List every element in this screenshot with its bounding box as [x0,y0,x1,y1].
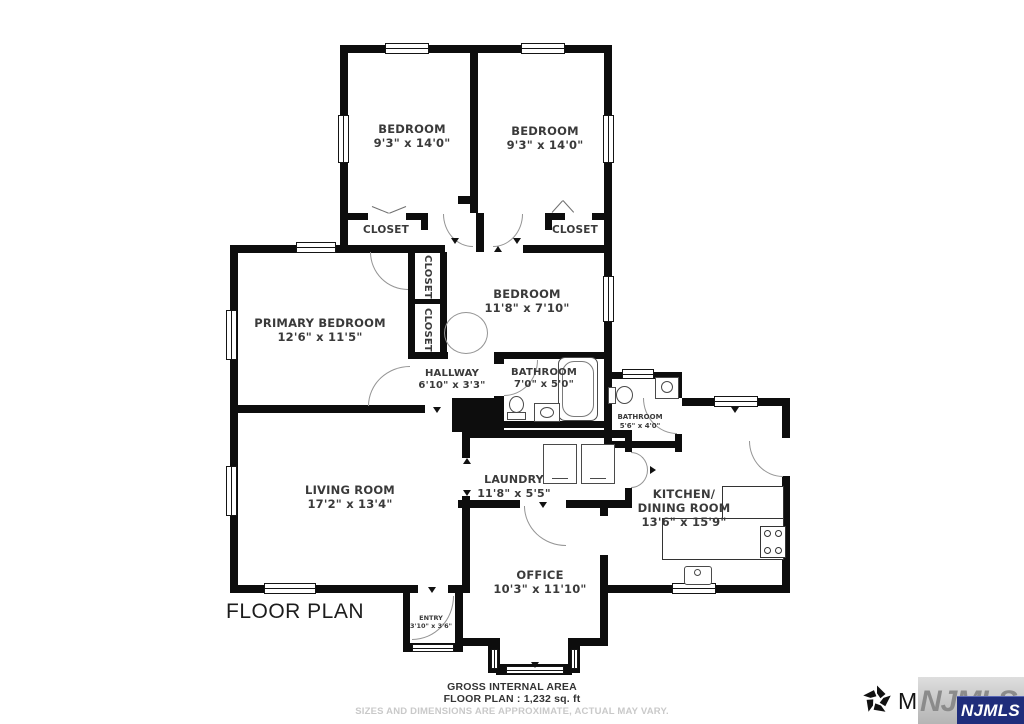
wall-segment [625,430,632,452]
room-dims: 5'6" x 4'0" [617,422,662,431]
wall-segment [455,593,463,645]
direction-arrow [433,407,441,413]
window-symbol [521,43,565,54]
room-label-bathroom-2: BATHROOM 5'6" x 4'0" [617,413,662,431]
wall-segment [604,441,682,448]
kitchen-counter [722,486,784,520]
room-name: BEDROOM [507,124,584,138]
room-name: HALLWAY [418,368,485,380]
window-symbol [603,115,614,163]
wall-segment [458,196,478,204]
closet-door-line [389,206,406,214]
window-symbol [264,583,316,594]
room-dims: 9'3" x 14'0" [507,138,584,152]
room-dims: 7'0" x 5'0" [511,379,577,391]
sink-basin-icon [661,381,673,393]
wall-segment [523,245,612,253]
wall-segment [462,496,470,592]
room-name: ENTRY [410,614,452,622]
room-name: PRIMARY BEDROOM [254,316,385,330]
room-dims: 11'8" x 5'5" [477,487,551,501]
closet-door-line [552,200,563,213]
room-label-bedroom-2: BEDROOM 9'3" x 14'0" [507,124,584,152]
matterport-logo-icon [860,683,894,721]
direction-arrow [451,238,459,244]
toilet-tank-icon [507,412,526,420]
closet-door-line [563,200,574,213]
wall-segment [497,421,612,428]
room-dims: 13'6" x 15'9" [638,515,731,529]
window-symbol [622,369,654,379]
window-symbol [385,43,429,54]
floor-plan-canvas: BEDROOM 9'3" x 14'0" BEDROOM 9'3" x 14'0… [0,0,1024,724]
door-arc [749,441,783,477]
wall-segment [346,213,368,220]
room-label-primary-bedroom: PRIMARY BEDROOM 12'6" x 11'5" [254,316,385,344]
room-name: BATHROOM [511,367,577,379]
direction-arrow [463,490,471,496]
double-door-arc [631,452,648,488]
direction-arrow [731,407,739,413]
room-label-laundry: LAUNDRY 11'8" x 5'5" [477,473,551,501]
wall-segment [230,585,418,593]
wall-segment [408,352,448,359]
wall-segment [448,585,470,593]
room-name: LIVING ROOM [305,483,395,497]
room-label-entry: ENTRY 3'10" x 3'6" [410,614,452,630]
window-symbol [714,396,758,407]
room-label-kitchen: KITCHEN/ DINING ROOM 13'6" x 15'9" [638,487,731,529]
direction-arrow [428,587,436,593]
room-dims: 11'8" x 7'10" [484,301,569,315]
room-name: CLOSET [421,308,433,352]
room-label-living-room: LIVING ROOM 17'2" x 13'4" [305,483,395,511]
wall-segment [462,430,632,438]
room-name: BEDROOM [484,287,569,301]
toilet-icon [616,386,633,404]
dryer-icon [581,444,615,484]
wall-segment [476,213,484,252]
room-dims: 17'2" x 13'4" [305,497,395,511]
room-label-hallway: HALLWAY 6'10" x 3'3" [418,368,485,392]
room-name: CLOSET [421,255,433,299]
njmls-badge: NJMLS [957,696,1024,724]
window-symbol [603,276,614,322]
wall-segment [566,500,632,508]
window-symbol [296,242,336,253]
room-label-closet-mid-upper: CLOSET [421,255,433,299]
wall-segment [545,213,552,230]
window-symbol [571,649,578,669]
footer-disclaimer: SIZES AND DIMENSIONS ARE APPROXIMATE, AC… [355,706,669,718]
direction-arrow [513,238,521,244]
room-name: BEDROOM [374,122,451,136]
room-name: OFFICE [493,568,586,582]
kitchen-sink-drain-icon [694,569,701,576]
room-dims: 12'6" x 11'5" [254,330,385,344]
window-symbol [226,466,237,516]
footer-area-label: GROSS INTERNAL AREA [355,682,669,694]
wall-segment [600,555,608,645]
door-arc [368,366,410,406]
footer: GROSS INTERNAL AREA FLOOR PLAN : 1,232 s… [355,682,669,718]
room-name: BATHROOM [617,413,662,422]
direction-arrow [531,662,539,668]
window-symbol [491,649,498,669]
wall-segment [408,252,415,358]
room-name: KITCHEN/ DINING ROOM [638,487,731,515]
wall-segment [421,213,428,230]
room-name: CLOSET [552,224,598,236]
door-arc [370,252,408,290]
direction-arrow [494,246,502,252]
door-arc [524,506,566,546]
wall-segment [592,213,606,220]
page-title: FLOOR PLAN [226,600,364,624]
direction-arrow [650,466,656,474]
window-symbol [338,115,349,163]
room-dims: 3'10" x 3'6" [410,622,452,630]
wall-segment [470,45,478,213]
window-symbol [412,644,454,652]
toilet-icon [509,396,524,413]
room-label-closet-top-right: CLOSET [552,224,598,236]
sink-basin-icon [540,407,554,418]
room-label-office: OFFICE 10'3" x 11'10" [493,568,586,596]
room-name: LAUNDRY [477,473,551,487]
njmls-badge-text: NJMLS [961,701,1020,721]
room-label-closet-mid-lower: CLOSET [421,308,433,352]
wall-segment [494,352,504,364]
wall-segment [403,593,410,650]
closet-door-line [372,206,389,214]
room-label-bedroom-1: BEDROOM 9'3" x 14'0" [374,122,451,150]
wall-segment [782,398,790,438]
room-label-bathroom-1: BATHROOM 7'0" x 5'0" [511,367,577,391]
window-symbol [226,310,237,360]
room-label-closet-top-left: CLOSET [363,224,409,236]
room-label-bedroom-3: BEDROOM 11'8" x 7'10" [484,287,569,315]
wall-segment [462,430,470,458]
wall-segment [230,245,238,593]
footer-area-value: FLOOR PLAN : 1,232 sq. ft [355,694,669,706]
stove-icon [760,526,786,558]
direction-arrow [463,458,471,464]
room-dims: 6'10" x 3'3" [418,380,485,392]
toilet-tank-icon [608,387,616,404]
room-name: CLOSET [363,224,409,236]
room-dims: 9'3" x 14'0" [374,136,451,150]
room-dims: 10'3" x 11'10" [493,582,586,596]
double-door-arc [444,312,488,354]
wall-segment [230,405,425,413]
wall-segment [408,299,447,304]
direction-arrow [539,502,547,508]
wall-segment [600,500,608,516]
